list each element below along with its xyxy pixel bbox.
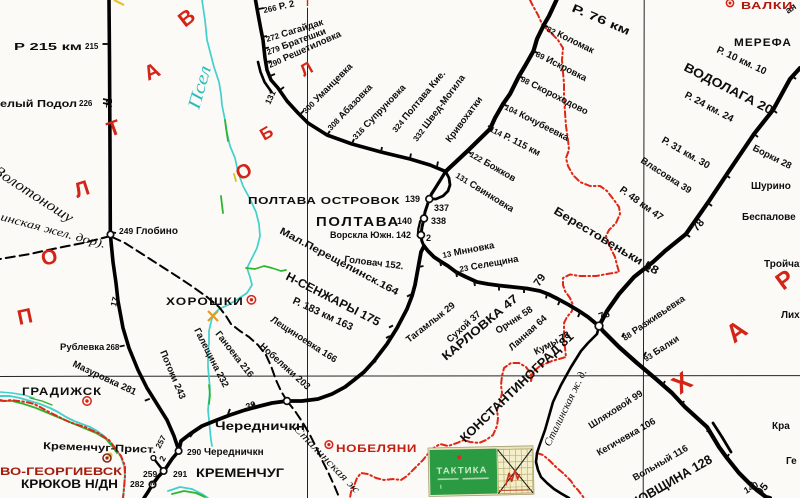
svg-text:249 Глобино: 249 Глобино (119, 225, 178, 237)
svg-text:291: 291 (173, 469, 187, 479)
svg-text:Лих: Лих (781, 310, 800, 321)
svg-text:Ворскла Южн.: Ворскла Южн. (330, 230, 394, 241)
svg-text:КРЮКОВ Н/ДН: КРЮКОВ Н/ДН (21, 479, 118, 491)
svg-text:Тройчаты: Тройчаты (764, 259, 800, 270)
svg-text:Кра: Кра (772, 421, 790, 432)
svg-text:Беспалове: Беспалове (742, 212, 796, 223)
svg-text:Ге: Ге (786, 456, 797, 467)
svg-text:337: 337 (434, 203, 449, 213)
svg-text:ПОЛТАВА ОСТРОВОК: ПОЛТАВА ОСТРОВОК (248, 195, 400, 207)
svg-text:259: 259 (143, 469, 157, 479)
svg-text:215: 215 (85, 42, 99, 51)
svg-text:КРЕМЕНЧУГ: КРЕМЕНЧУГ (196, 466, 284, 480)
svg-text:140: 140 (397, 216, 412, 226)
svg-text:71: 71 (105, 99, 114, 108)
svg-text:ВО-ГЕОРГИЕВСК: ВО-ГЕОРГИЕВСК (0, 466, 122, 478)
svg-text:139: 139 (405, 194, 420, 204)
svg-text:282: 282 (130, 479, 144, 489)
svg-text:елый Подол: елый Подол (0, 98, 77, 110)
svg-text:Шурино: Шурино (751, 181, 791, 192)
svg-text:ПОЛТАВА: ПОЛТАВА (316, 214, 400, 229)
svg-text:Рублевка: Рублевка (60, 342, 105, 353)
svg-text:Р 215 км: Р 215 км (14, 41, 82, 53)
svg-text:338: 338 (431, 216, 446, 226)
svg-text:290 Чередничкн: 290 Чередничкн (187, 447, 264, 458)
svg-text:142: 142 (396, 230, 411, 240)
svg-text:226: 226 (79, 99, 93, 108)
svg-text:ТАКТИКА: ТАКТИКА (436, 465, 487, 476)
svg-text:МЕРЕФА: МЕРЕФА (734, 37, 792, 49)
svg-text:НОБЕЛЯНИ: НОБЕЛЯНИ (336, 443, 417, 455)
svg-text:268: 268 (106, 343, 120, 352)
svg-text:2: 2 (426, 233, 431, 243)
svg-text:ХОРОШКИ: ХОРОШКИ (166, 296, 244, 308)
svg-text:ГРАДИЖСК: ГРАДИЖСК (22, 386, 102, 398)
svg-text:ВАЛКИ: ВАЛКИ (741, 0, 793, 12)
